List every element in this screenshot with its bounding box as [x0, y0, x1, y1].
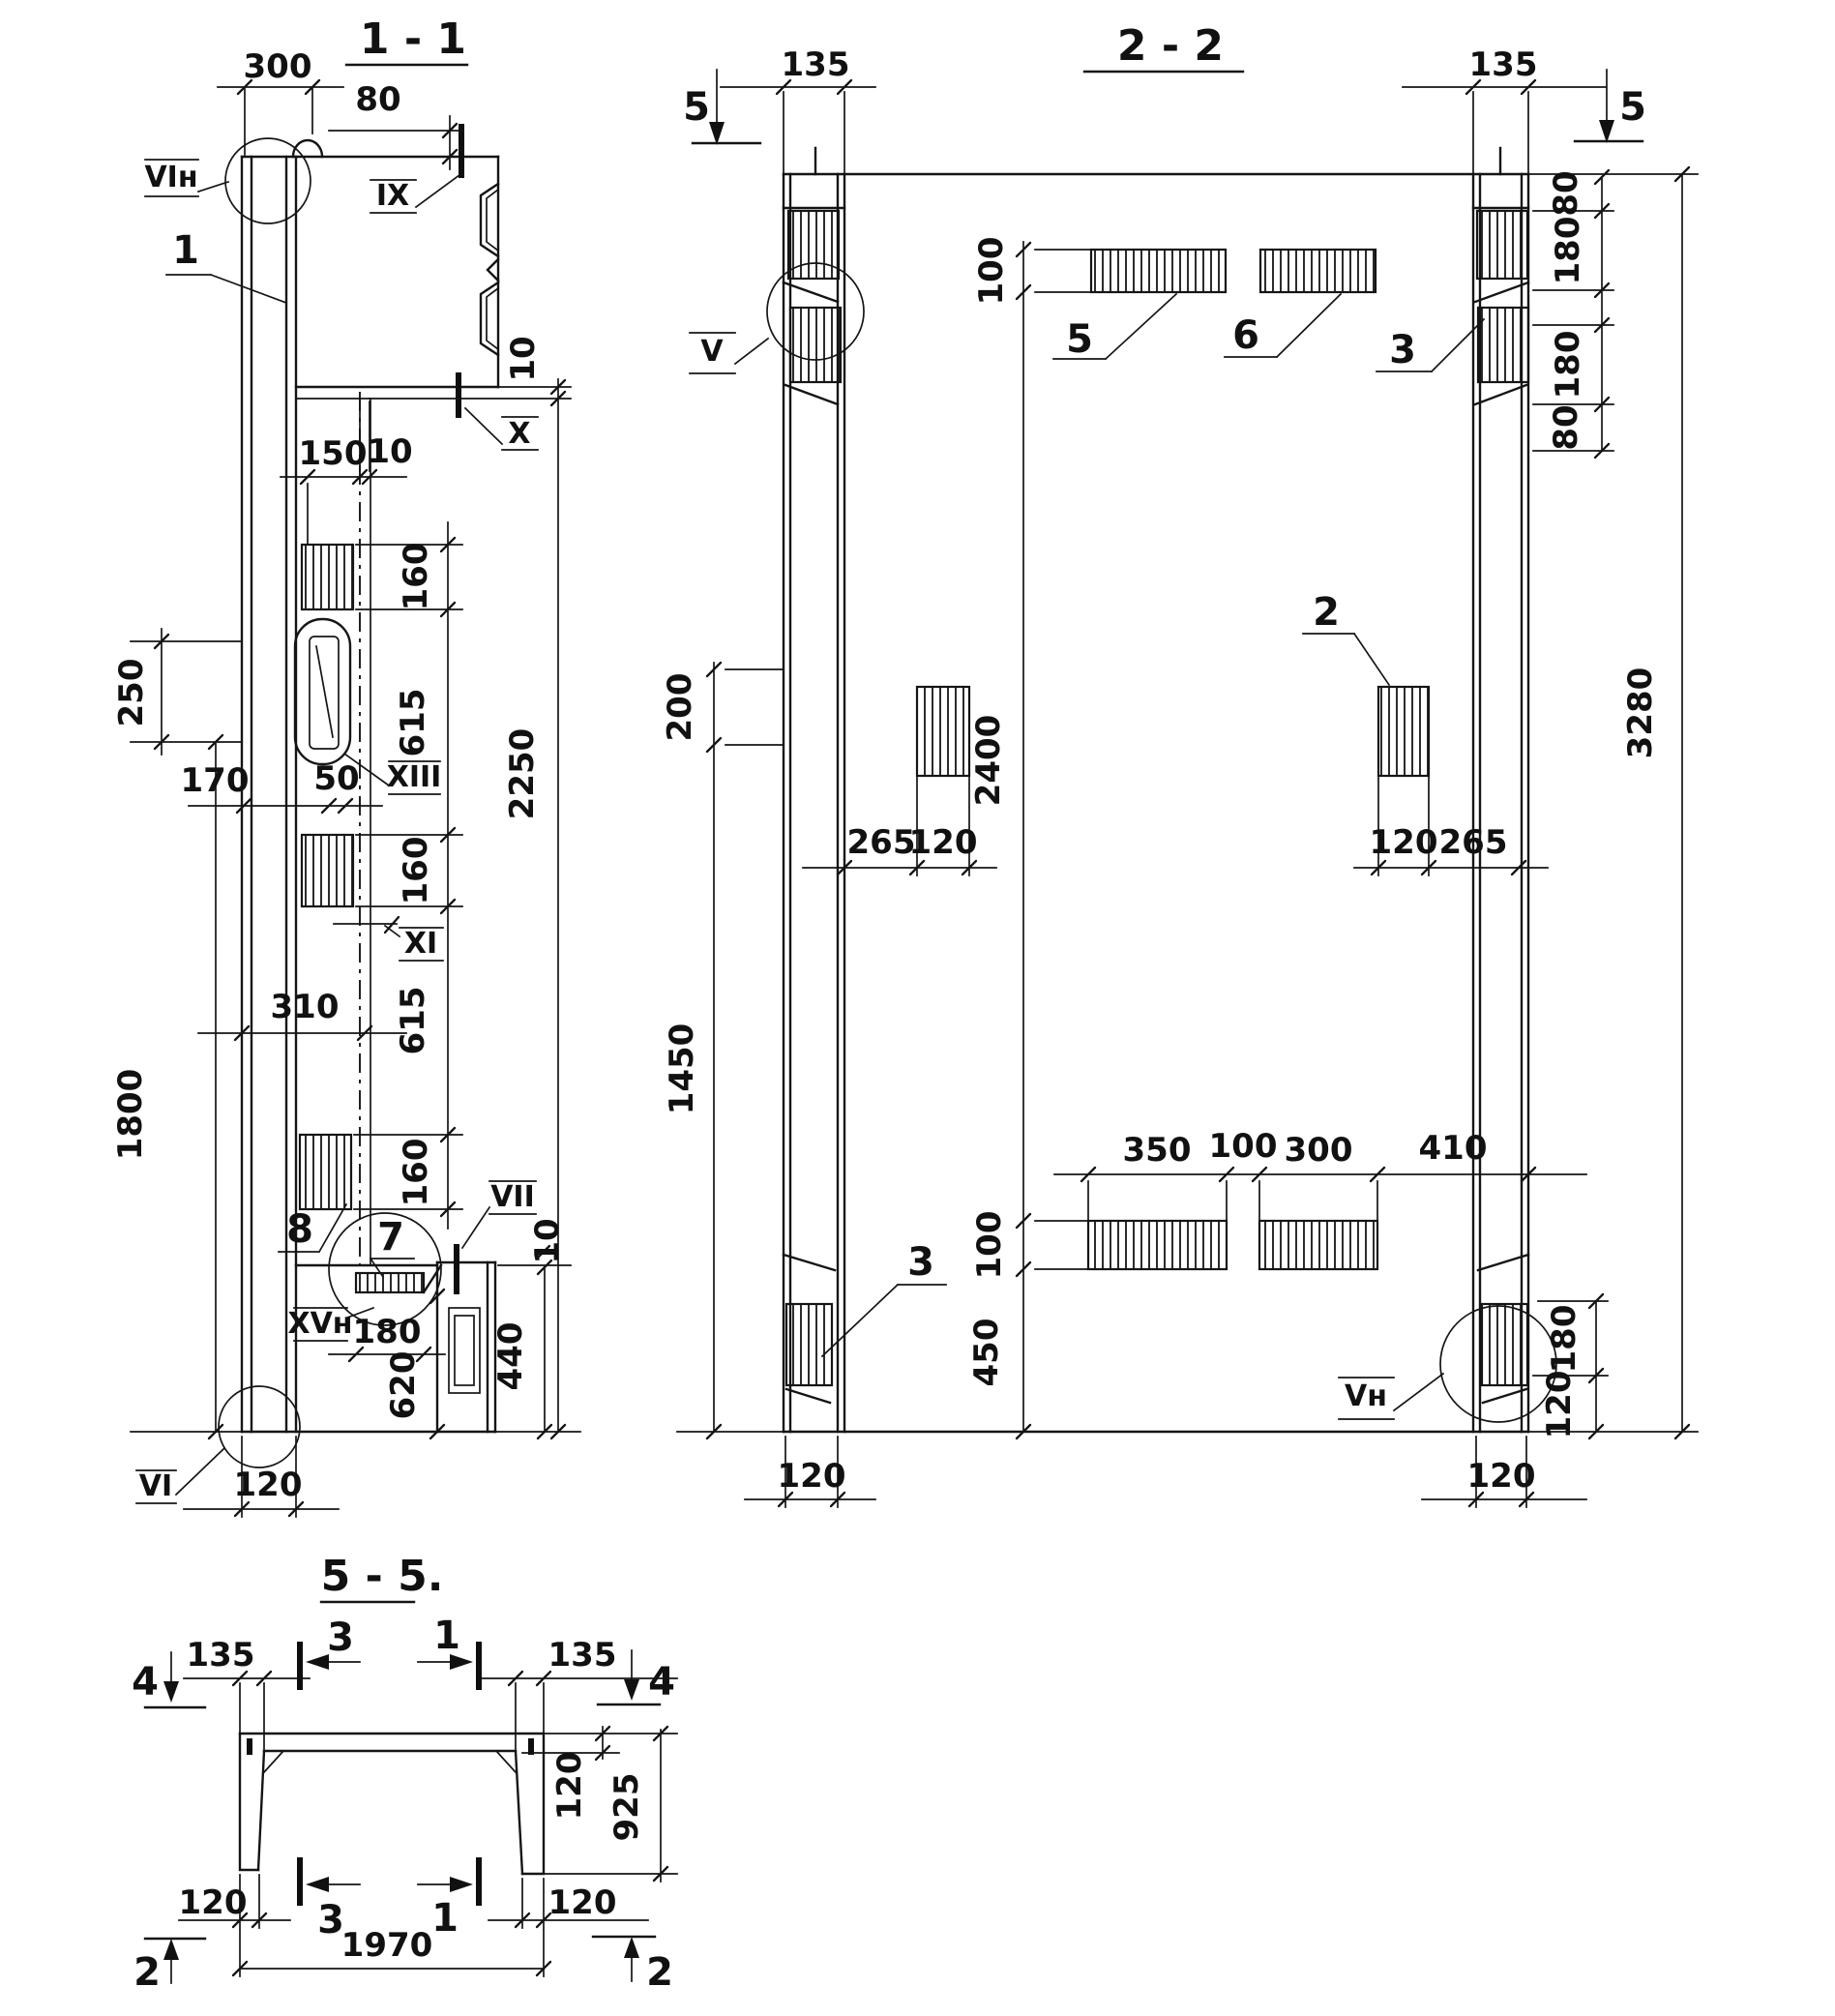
column-key-plate — [1482, 1304, 1527, 1385]
dim-10-step: 10 — [504, 336, 543, 381]
callout-x: X — [508, 417, 530, 451]
dim-80-b: 80 — [1547, 404, 1585, 450]
callout-vn: Vн — [1345, 1379, 1387, 1413]
dim-170: 170 — [181, 761, 250, 800]
part-label-8: 8 — [286, 1207, 313, 1252]
dim-620: 620 — [384, 1351, 423, 1420]
dim-300: 300 — [244, 47, 312, 86]
column-key-plate — [788, 211, 839, 279]
embedded-plate — [302, 835, 353, 906]
dim-135-r: 135 — [1469, 45, 1538, 84]
dim-100-b: 100 — [970, 1211, 1009, 1280]
dim-120-mr: 120 — [1370, 823, 1438, 862]
dim-160-b: 160 — [397, 837, 435, 905]
dim-3280: 3280 — [1621, 667, 1660, 759]
embedded-plate-5 — [1091, 250, 1226, 292]
dim-350: 350 — [1123, 1131, 1192, 1170]
dim-440: 440 — [491, 1322, 530, 1391]
embedded-plate-2 — [1378, 687, 1429, 776]
column-key-plate — [790, 308, 841, 382]
dim-120-brv: 120 — [1540, 1371, 1579, 1439]
dim-310: 310 — [271, 988, 340, 1026]
key-slot — [449, 1308, 480, 1393]
section-1-1-outline — [242, 140, 498, 1432]
drawing-sheet: 1 - 1 — [0, 0, 1835, 2016]
part-label-3-top: 3 — [1389, 328, 1416, 372]
embedded-plate-6 — [1260, 250, 1376, 292]
dim-100-t: 100 — [972, 237, 1011, 306]
part-label-7: 7 — [377, 1215, 404, 1260]
section-1-1-view: 1 - 1 — [111, 15, 580, 1517]
embedded-plate-bottom — [356, 1273, 424, 1292]
dim-120-r: 120 — [550, 1752, 589, 1821]
detail-circle-vin — [225, 138, 311, 223]
cut-mark-2-left: 2 — [133, 1950, 161, 1995]
dim-135-r: 135 — [548, 1636, 617, 1675]
dim-1970: 1970 — [341, 1926, 433, 1965]
embedded-plate — [1088, 1221, 1227, 1269]
callout-xiii: XIII — [387, 760, 442, 794]
dim-150: 150 — [299, 434, 368, 473]
section-5-5-outline — [240, 1734, 544, 1874]
callout-vi: VI — [139, 1469, 172, 1503]
cut-mark-1-bottom: 1 — [431, 1896, 459, 1941]
dim-615-b: 615 — [394, 987, 432, 1055]
section-5-5-view: 5 - 5. 135 135 4 4 — [132, 1552, 677, 1995]
dim-1800: 1800 — [111, 1069, 150, 1161]
dim-925: 925 — [607, 1773, 646, 1842]
cut-mark-1-top: 1 — [433, 1614, 460, 1658]
dim-120-br: 120 — [1467, 1457, 1536, 1496]
part-label-3-bottom: 3 — [907, 1240, 934, 1285]
dim-265-ml: 265 — [847, 823, 916, 862]
callout-ix: IX — [376, 179, 409, 213]
dim-10-k: 10 — [367, 432, 412, 471]
dim-2250: 2250 — [503, 728, 542, 820]
section-5-5-dimensions: 135 135 4 4 3 1 3 — [132, 1614, 677, 1995]
section-1-1-title: 1 - 1 — [360, 15, 466, 64]
dim-50: 50 — [313, 759, 359, 798]
dim-180-br: 180 — [1545, 1305, 1583, 1374]
embedded-plate — [302, 545, 353, 609]
dim-120-b: 120 — [234, 1466, 303, 1504]
dim-265-mr: 265 — [1439, 823, 1508, 862]
section-5-5-title: 5 - 5. — [321, 1552, 444, 1601]
dim-250: 250 — [112, 659, 151, 727]
callout-vii: VII — [490, 1180, 535, 1214]
section-1-1-callouts: VIн IX X XIII XI VII XVн VI 1 8 7 — [136, 160, 538, 1503]
part-label-5: 5 — [1066, 317, 1093, 362]
cut-mark-2-right: 2 — [646, 1950, 673, 1995]
part-label-2: 2 — [1313, 590, 1340, 635]
embedded-plate — [1259, 1221, 1377, 1269]
callout-v: V — [700, 335, 724, 369]
dim-120-ml: 120 — [909, 823, 978, 862]
dim-615-a: 615 — [394, 689, 432, 757]
dim-450: 450 — [967, 1319, 1006, 1387]
dim-135-l: 135 — [187, 1636, 255, 1675]
dim-100-m: 100 — [1209, 1127, 1278, 1166]
dim-80: 80 — [355, 80, 400, 119]
dim-160-c: 160 — [397, 1139, 435, 1207]
dim-180-b: 180 — [1549, 331, 1587, 400]
slot-detail — [295, 619, 350, 764]
dim-2400: 2400 — [969, 715, 1008, 807]
cut-mark-5-right: 5 — [1619, 85, 1646, 130]
section-2-2-view: 2 - 2 — [661, 21, 1698, 1507]
lifting-loop — [293, 140, 322, 157]
dim-410: 410 — [1419, 1129, 1488, 1168]
dim-180-a: 180 — [1549, 217, 1587, 285]
embedded-plate — [917, 687, 969, 776]
column-key-plate — [1477, 211, 1527, 279]
cut-mark-4-left: 4 — [132, 1660, 159, 1705]
part-label-1: 1 — [172, 228, 199, 273]
callout-xi: XI — [404, 927, 437, 961]
callout-xvn: XVн — [287, 1307, 352, 1341]
embedded-plate — [300, 1135, 351, 1209]
technical-drawing: 1 - 1 — [0, 0, 1835, 2016]
section-2-2-title: 2 - 2 — [1117, 21, 1224, 71]
detail-circle-vi — [219, 1386, 300, 1468]
dim-200: 200 — [661, 673, 699, 742]
dim-10-b: 10 — [528, 1218, 567, 1263]
dim-180-b: 180 — [353, 1313, 422, 1351]
cut-mark-4-right: 4 — [648, 1660, 675, 1705]
part-label-6: 6 — [1232, 313, 1259, 358]
column-key-plate — [1478, 308, 1528, 382]
cut-mark-3-top: 3 — [327, 1616, 354, 1660]
dim-300: 300 — [1285, 1131, 1353, 1170]
column-key-plate — [786, 1304, 832, 1385]
dim-135-l: 135 — [782, 45, 850, 84]
dim-1450: 1450 — [663, 1023, 701, 1115]
dim-120-br: 120 — [548, 1883, 617, 1922]
dim-120-bl: 120 — [778, 1457, 846, 1496]
callout-vin: VIн — [144, 161, 197, 194]
dim-80-a: 80 — [1547, 170, 1585, 216]
dim-120-bl: 120 — [179, 1883, 248, 1922]
cut-mark-5-left: 5 — [683, 85, 710, 130]
dim-160-a: 160 — [397, 543, 435, 611]
